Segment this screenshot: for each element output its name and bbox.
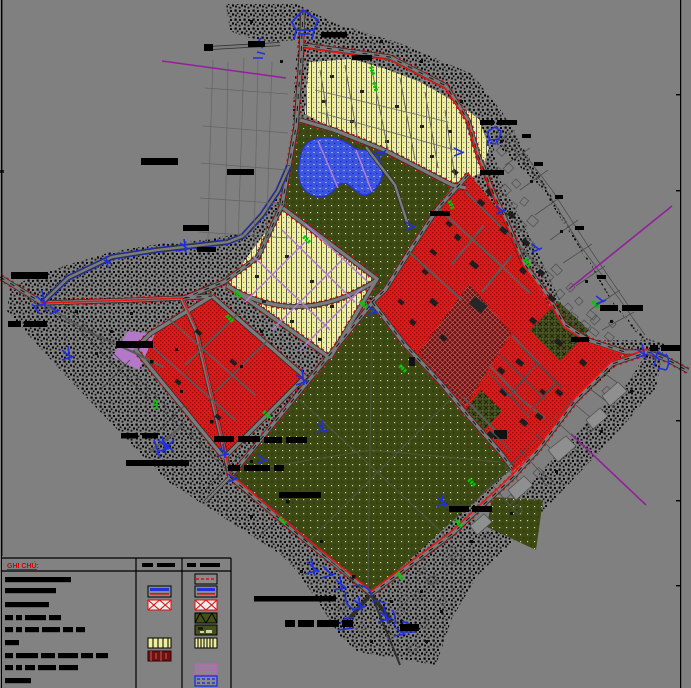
svg-text:GHI CHÚ:: GHI CHÚ: [7,561,39,570]
